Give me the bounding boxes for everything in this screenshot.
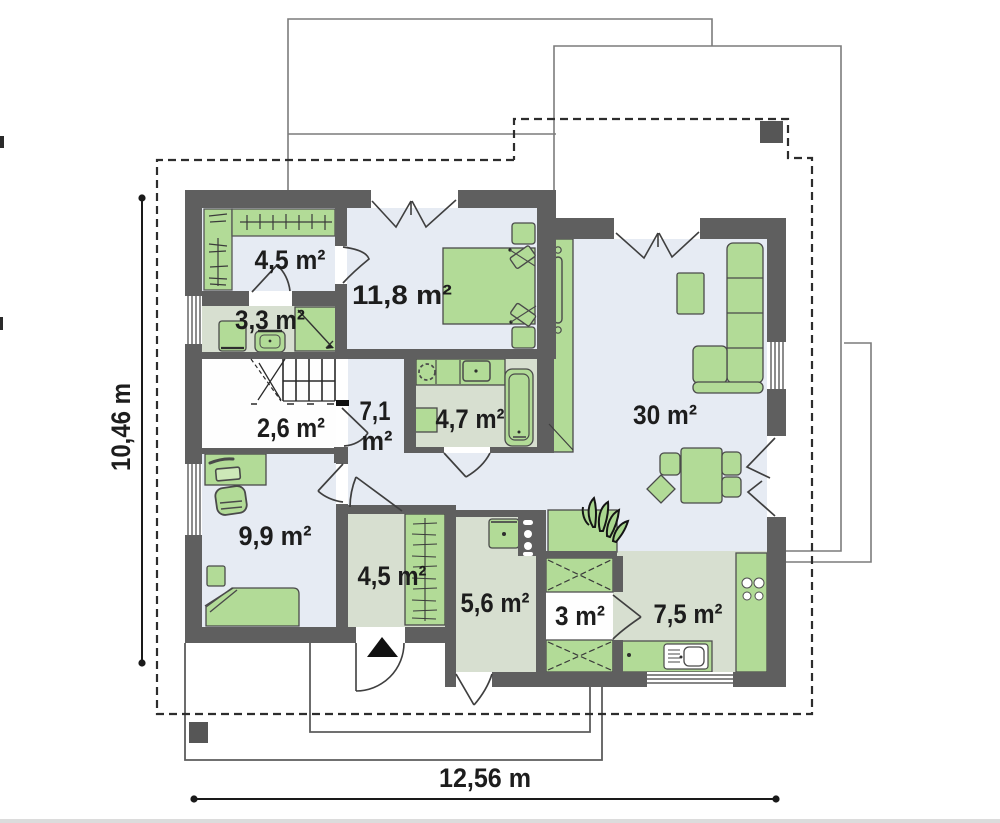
svg-text:4,7 m²: 4,7 m² [436, 404, 505, 434]
svg-text:2,6 m²: 2,6 m² [257, 413, 325, 443]
svg-text:3 m²: 3 m² [555, 601, 605, 631]
svg-text:3,3 m²: 3,3 m² [235, 305, 305, 335]
svg-text:m²: m² [362, 426, 393, 456]
svg-text:5,6 m²: 5,6 m² [461, 588, 530, 618]
svg-text:9,9 m²: 9,9 m² [239, 521, 312, 551]
svg-text:10,46 m: 10,46 m [106, 383, 136, 471]
svg-text:30 m²: 30 m² [633, 400, 697, 430]
svg-text:4,5 m²: 4,5 m² [255, 245, 326, 275]
svg-text:7,5 m²: 7,5 m² [654, 599, 723, 629]
svg-text:11,8 m²: 11,8 m² [352, 280, 452, 310]
svg-text:12,56 m: 12,56 m [439, 763, 531, 793]
svg-text:4,5 m²: 4,5 m² [358, 561, 427, 591]
svg-text:7,1: 7,1 [360, 396, 391, 426]
